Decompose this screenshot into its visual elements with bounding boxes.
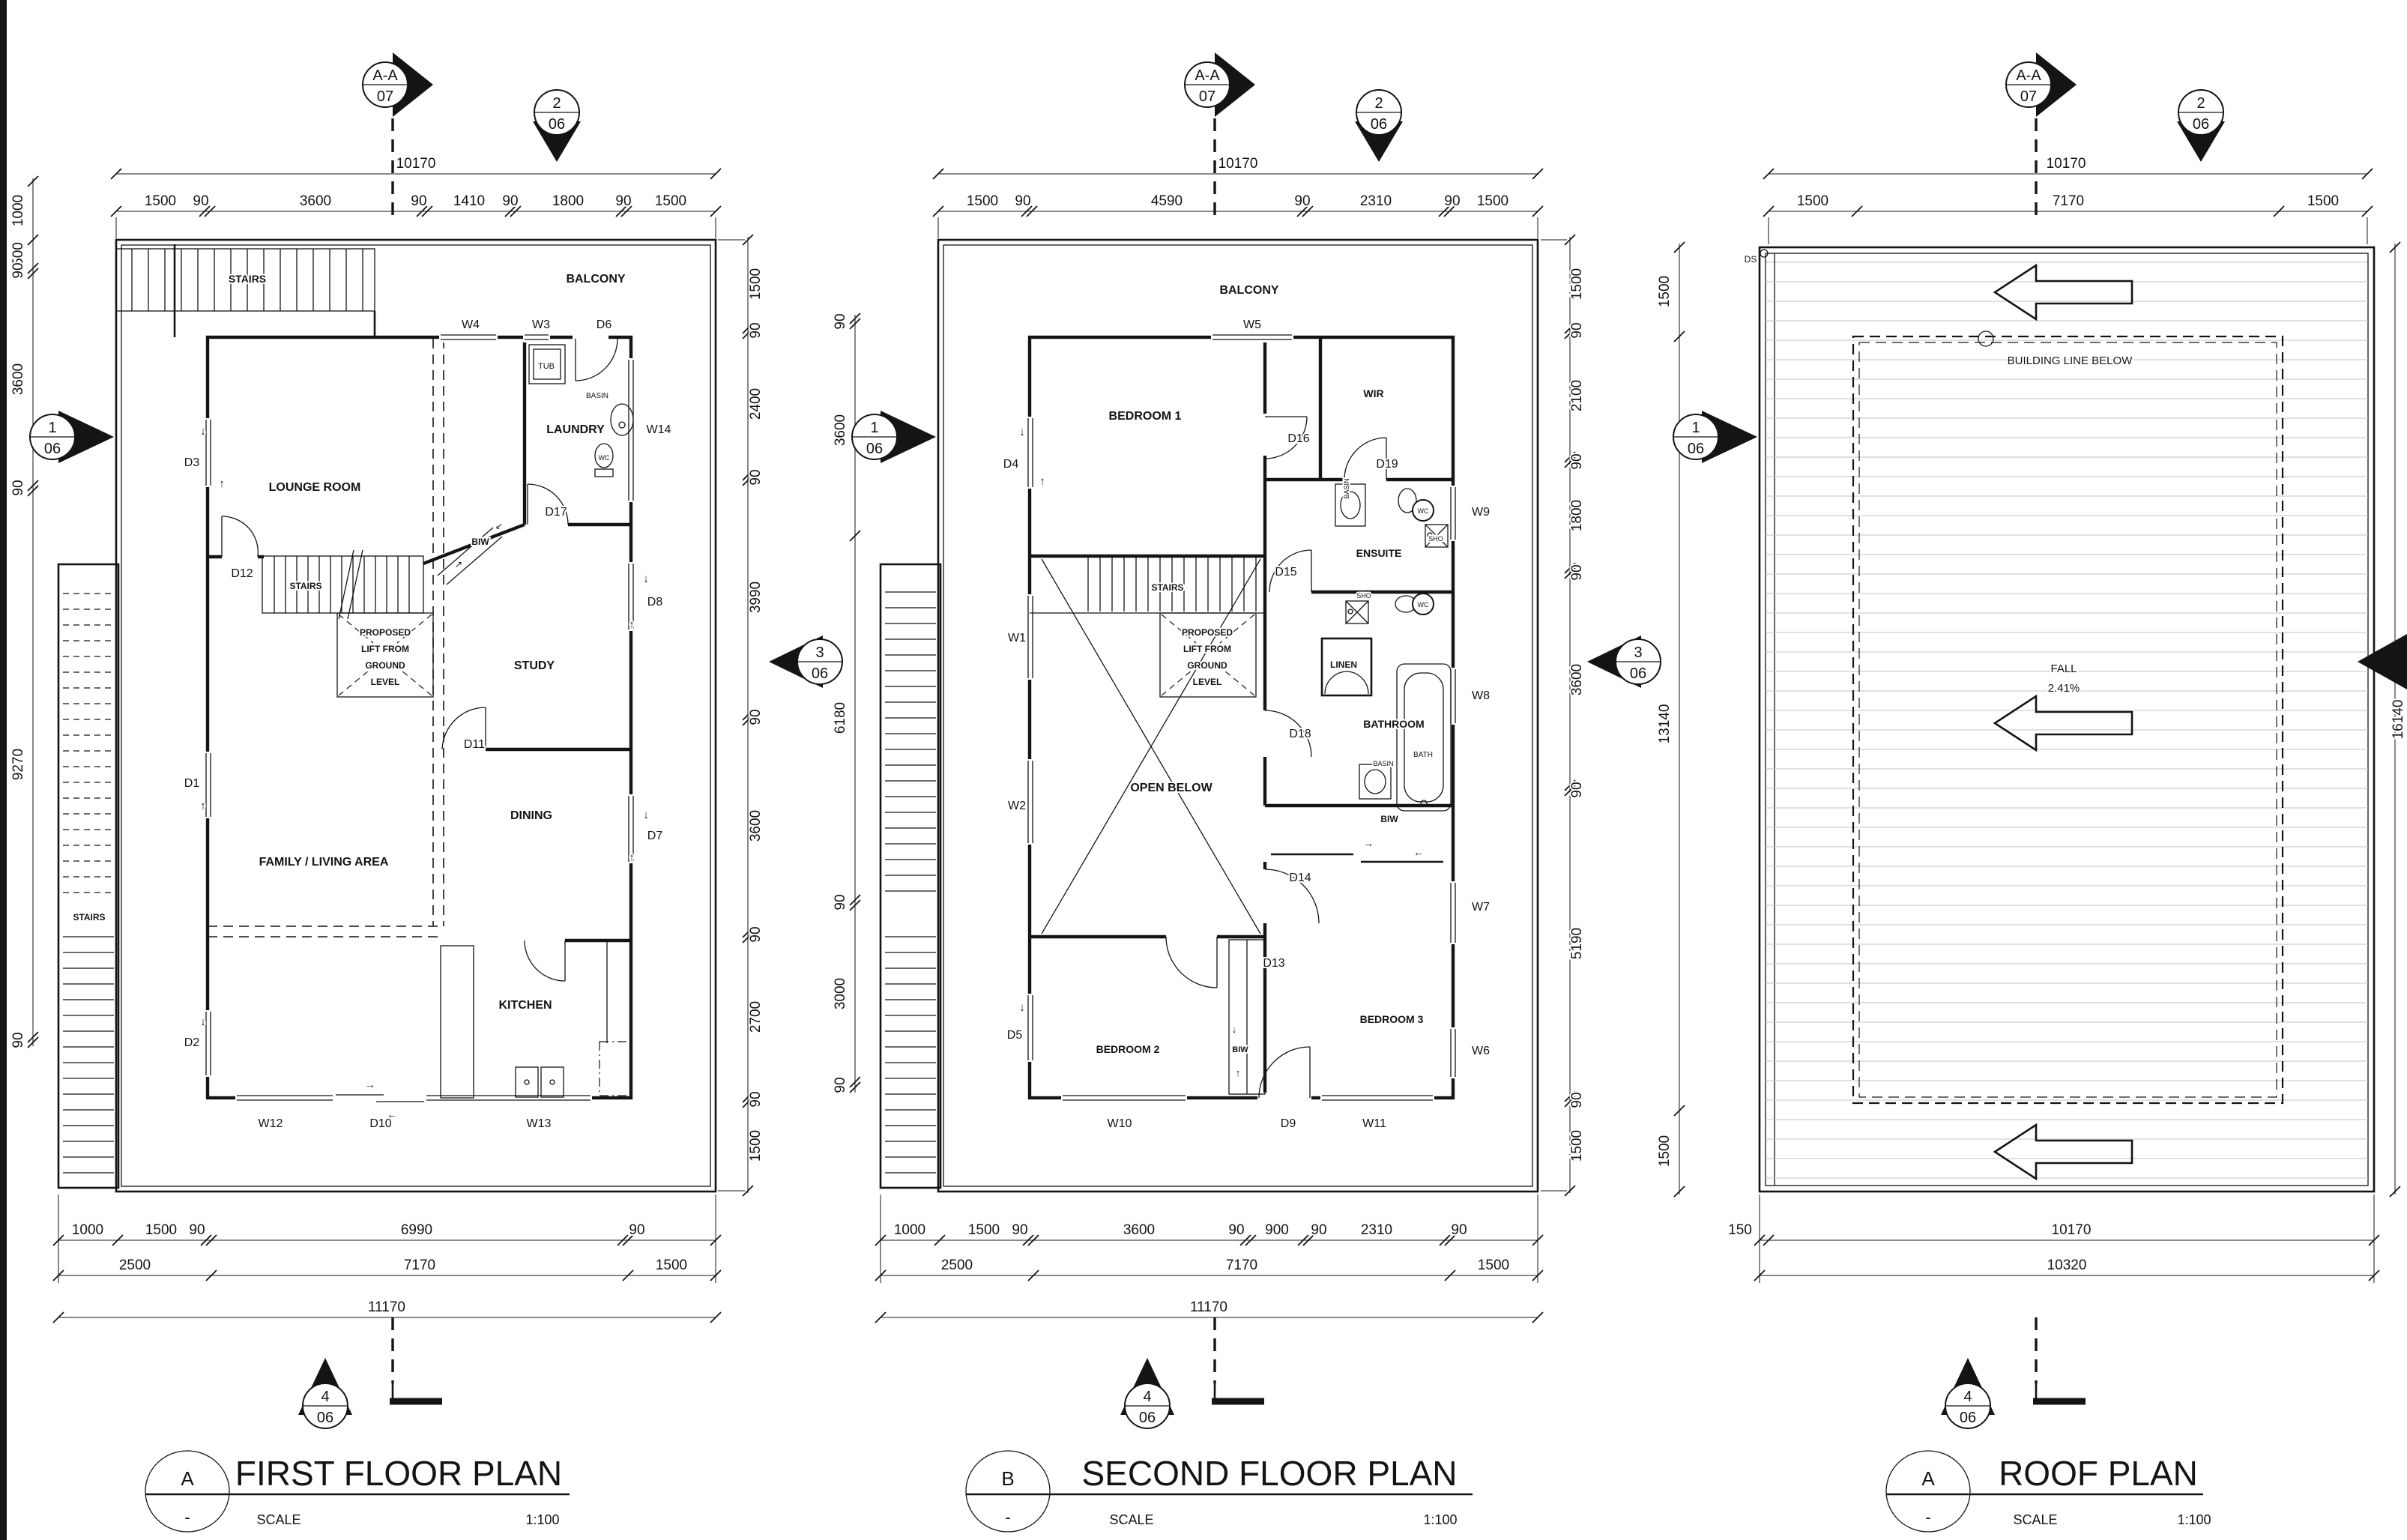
dim-label: 90 xyxy=(10,262,26,278)
room-label: WIR xyxy=(1363,387,1383,399)
dim-label: 90 xyxy=(748,322,764,338)
rp-building-line-below xyxy=(1853,331,2283,1103)
elevation-marker-number: 06 xyxy=(1960,1410,1976,1426)
window-w1 xyxy=(1024,594,1035,680)
clipped-right-marker xyxy=(2358,634,2407,689)
room-label: LOUNGE ROOM xyxy=(269,481,361,494)
door-swing-arrow: ↓ xyxy=(643,809,649,821)
dim-label: 1500 xyxy=(655,193,686,209)
scale-label: SCALE xyxy=(2013,1512,2057,1527)
dim-label: 2310 xyxy=(1360,193,1392,209)
room-label: BALCONY xyxy=(1219,284,1278,297)
room-label: OPEN BELOW xyxy=(1130,782,1212,794)
dim-label: 90 xyxy=(1228,1222,1244,1238)
elevation-marker-label: 1 xyxy=(870,420,878,436)
room-label: STAIRS xyxy=(289,581,321,591)
dim-label: 90 xyxy=(1015,193,1030,209)
ensuite-toilet xyxy=(1398,489,1434,521)
dim-label: 1000 xyxy=(10,195,26,226)
fixture-label: BASIN xyxy=(586,392,608,400)
dim-label: 90 xyxy=(615,193,631,209)
dim-label: 9270 xyxy=(10,749,26,780)
door-swing-arrow: ↓ xyxy=(1019,426,1025,438)
door-tag: D19 xyxy=(1376,458,1398,471)
door-tag: D12 xyxy=(231,567,253,580)
dim-label: 10170 xyxy=(1218,156,1258,172)
dim-label: 1000 xyxy=(72,1222,103,1238)
door-d12-swing xyxy=(222,516,258,557)
dim-label: 2100 xyxy=(1569,380,1585,411)
annotation: PROPOSED xyxy=(1182,627,1233,638)
door-swing-arrow: ↑ xyxy=(629,618,635,631)
door-tag: D9 xyxy=(1281,1117,1296,1130)
dim-label: 90 xyxy=(1569,1092,1585,1108)
bedroom2-biw xyxy=(1229,940,1265,1094)
section-marker-label: A-A xyxy=(372,67,398,84)
dim-label: 1500 xyxy=(145,193,176,209)
ffp-main-walls xyxy=(208,337,631,1098)
dim-label: 1500 xyxy=(967,193,998,209)
fixture-label: BASIN xyxy=(1373,760,1393,767)
dim-label: 3000 xyxy=(833,978,848,1009)
ffp-dimensions xyxy=(28,169,753,1323)
bathroom-shower xyxy=(1346,601,1368,623)
door-swing-arrow: ↗ xyxy=(455,559,462,570)
dim-label: 90 xyxy=(1451,1222,1467,1238)
door-tag: D15 xyxy=(1275,566,1296,579)
elevation-marker-label: 2 xyxy=(2196,95,2205,112)
window-w8 xyxy=(1448,668,1458,725)
dim-label: 11170 xyxy=(368,1299,405,1315)
door-tag: D11 xyxy=(464,738,485,751)
annotation: BUILDING LINE BELOW xyxy=(2008,354,2133,367)
fixture-label: WC xyxy=(1418,601,1429,609)
window-w6 xyxy=(1448,1027,1458,1078)
dim-label: 90 xyxy=(10,1032,26,1048)
door-d4 xyxy=(1024,417,1035,489)
fixture-label: BIW xyxy=(471,537,489,547)
section-marker-number: 07 xyxy=(1199,88,1215,105)
dim-label: 1500 xyxy=(968,1222,1000,1238)
fall-arrow-top xyxy=(1995,265,2132,319)
door-swing-arrow: → xyxy=(1363,837,1374,849)
titleblock-letter: B xyxy=(1001,1467,1014,1490)
dim-label: 11170 xyxy=(1190,1299,1227,1315)
door-tag: D13 xyxy=(1263,957,1284,970)
dim-label: 900 xyxy=(1265,1222,1289,1238)
dim-label: 10170 xyxy=(396,156,436,172)
dim-label: 3600 xyxy=(748,810,764,842)
window-tag: W11 xyxy=(1362,1117,1386,1130)
fall-arrow-bottom xyxy=(1995,1125,2132,1179)
elevation-marker-label: 2 xyxy=(552,95,561,112)
dim-label: 90 xyxy=(833,894,848,910)
rp-labels: A-A0720610640610170150071701500150013140… xyxy=(1657,67,2406,1527)
dim-label: 3990 xyxy=(748,582,764,613)
door-tag: D14 xyxy=(1289,872,1311,884)
dim-label: 1500 xyxy=(656,1257,687,1273)
window-tag: W13 xyxy=(527,1117,552,1130)
dim-label: 90 xyxy=(10,480,26,495)
ffp-kitchen-fixtures xyxy=(441,940,631,1098)
dim-label: 10170 xyxy=(2047,156,2086,172)
dim-label: 90 xyxy=(748,926,764,942)
dim-label: 6180 xyxy=(833,702,848,734)
elevation-marker-number: 06 xyxy=(1688,441,1704,457)
ensuite-basin xyxy=(1335,484,1365,526)
window-w7 xyxy=(1448,881,1458,944)
annotation: DS xyxy=(1745,254,1757,265)
door-swing-arrow: ↓ xyxy=(643,573,649,585)
fixture-label: SHO xyxy=(1428,535,1443,543)
elevation-marker-label: 1 xyxy=(48,420,56,436)
dim-label: 3600 xyxy=(1123,1222,1155,1238)
dim-label: 1500 xyxy=(1478,1257,1509,1273)
sfp-fixtures xyxy=(1229,484,1451,1094)
dim-label: 3600 xyxy=(300,193,331,209)
elevation-marker-number: 06 xyxy=(1371,116,1387,133)
window-tag: W2 xyxy=(1008,800,1026,812)
rp-section-markers xyxy=(1673,52,2407,1428)
dim-label: 7170 xyxy=(404,1257,435,1273)
dim-label: 1500 xyxy=(1797,193,1828,209)
dim-label: 90 xyxy=(411,193,426,209)
door-swing-arrow: → xyxy=(365,1078,375,1090)
door-swing-arrow: ↑ xyxy=(1236,1067,1241,1078)
elevation-marker-number: 06 xyxy=(1139,1410,1156,1426)
plan-title: FIRST FLOOR PLAN xyxy=(235,1454,562,1493)
dim-label: 90 xyxy=(189,1222,205,1238)
room-label: BEDROOM 1 xyxy=(1109,410,1182,423)
dim-label: 90 xyxy=(748,1091,764,1107)
fixture-label: BIW xyxy=(1380,814,1398,824)
room-label: STAIRS xyxy=(1151,582,1183,593)
door-swing-arrow: ↑ xyxy=(629,851,635,864)
elevation-marker-label: 4 xyxy=(1963,1389,1972,1405)
dim-label: 2700 xyxy=(748,1001,764,1033)
window-w11 xyxy=(1320,1093,1434,1103)
dim-label: 1800 xyxy=(1569,500,1585,531)
dim-label: 90 xyxy=(1311,1222,1326,1238)
elevation-marker-label: 2 xyxy=(1374,95,1383,112)
door-swing-arrow: ↓ xyxy=(200,425,206,438)
second-floor-plan: A-A0720610630640610170150090459090231090… xyxy=(833,52,1661,1532)
dim-label: 90 xyxy=(833,1077,848,1093)
dim-label: 1500 xyxy=(2307,193,2339,209)
room-label: LAUNDRY xyxy=(546,423,605,436)
dim-label: 90 xyxy=(1444,193,1460,209)
elevation-marker-number: 06 xyxy=(317,1410,333,1426)
window-w14 xyxy=(626,358,636,502)
door-tag: D16 xyxy=(1287,432,1309,445)
annotation: LEVEL xyxy=(371,677,400,687)
fall-arrow-middle xyxy=(1995,696,2132,750)
door-swing-arrow: ← xyxy=(387,1108,397,1120)
fixture-label: BATH xyxy=(1413,751,1433,759)
window-tag: W6 xyxy=(1472,1045,1490,1057)
room-label: BALCONY xyxy=(566,273,625,286)
window-tag: W9 xyxy=(1472,506,1490,519)
first-floor-plan: A-A0720610630640610170150090360090141090… xyxy=(10,52,842,1532)
scale-value: 1:100 xyxy=(2177,1512,2211,1527)
annotation: 2.41% xyxy=(2048,682,2080,695)
dim-label: 1500 xyxy=(145,1222,177,1238)
dim-label: 90 xyxy=(1012,1222,1027,1238)
door-d13-swing xyxy=(1166,937,1217,988)
scale-label: SCALE xyxy=(1109,1512,1153,1527)
window-tag: W14 xyxy=(647,423,671,436)
dim-label: 4590 xyxy=(1151,193,1183,209)
annotation: FALL xyxy=(2050,662,2077,675)
elevation-marker-label: 1 xyxy=(1691,420,1700,436)
door-tag: D18 xyxy=(1289,728,1311,740)
sfp-open-below xyxy=(1030,558,1265,934)
fixture-label: WC xyxy=(1418,507,1429,515)
dim-label: 90 xyxy=(1569,453,1585,469)
window-w10 xyxy=(1061,1093,1187,1103)
annotation: LEVEL xyxy=(1193,677,1222,687)
elevation-marker-number: 06 xyxy=(549,116,565,133)
elevation-marker-number: 06 xyxy=(44,441,61,457)
door-tag: D1 xyxy=(184,777,200,790)
elevation-marker-number: 06 xyxy=(812,665,828,682)
room-label: ENSUITE xyxy=(1356,547,1402,559)
dim-label: 7170 xyxy=(2053,193,2084,209)
dim-label: 13140 xyxy=(1657,704,1673,744)
roof-plan: A-A0720610640610170150071701500150013140… xyxy=(1657,52,2407,1532)
dim-label: 5190 xyxy=(1569,928,1585,959)
section-marker-number: 07 xyxy=(2020,88,2037,105)
door-tag: D17 xyxy=(545,506,567,519)
dim-label: 3600 xyxy=(833,414,848,446)
fixture-label: TUB xyxy=(538,362,555,371)
window-tag: W1 xyxy=(1008,632,1026,644)
elevation-marker-label: 4 xyxy=(1143,1389,1151,1405)
fridge-space xyxy=(600,1042,631,1096)
door-d6 xyxy=(573,332,617,381)
dim-label: 90 xyxy=(629,1222,644,1238)
window-w2 xyxy=(1024,759,1035,845)
scale-label: SCALE xyxy=(256,1512,301,1527)
door-tag: D8 xyxy=(647,596,663,609)
door-swing-arrow: ↓ xyxy=(200,1015,206,1028)
dim-label: 90 xyxy=(833,313,848,329)
sfp-side-stairs xyxy=(881,564,940,1188)
page-binding-edge xyxy=(0,0,7,1540)
elevation-marker-label: 3 xyxy=(1634,644,1642,661)
dim-label: 1410 xyxy=(453,193,485,209)
ffp-front-stairs xyxy=(116,244,375,337)
fixture-label: BASIN xyxy=(1343,478,1350,498)
room-label: BEDROOM 3 xyxy=(1360,1013,1424,1025)
dim-label: 90 xyxy=(1569,564,1585,580)
dim-label: 3600 xyxy=(10,363,26,395)
scale-value: 1:100 xyxy=(1423,1512,1457,1527)
section-marker-number: 07 xyxy=(377,88,393,105)
room-label: STUDY xyxy=(514,659,555,672)
bathroom-basin xyxy=(1359,764,1391,799)
ffp-labels: A-A0720610630640610170150090360090141090… xyxy=(10,67,828,1527)
dim-label: 2500 xyxy=(941,1257,973,1273)
scale-value: 1:100 xyxy=(525,1512,559,1527)
dim-label: 90 xyxy=(193,193,208,209)
door-swing-arrow: ← xyxy=(1413,846,1424,858)
section-marker-label: A-A xyxy=(2016,67,2041,84)
fixture-label: SHO xyxy=(1356,592,1371,600)
room-label: LINEN xyxy=(1330,659,1357,670)
dim-label: 3600 xyxy=(1569,664,1585,695)
dim-label: 2310 xyxy=(1361,1222,1392,1238)
dim-label: 7170 xyxy=(1226,1257,1257,1273)
kitchen-door-swing xyxy=(525,940,565,981)
window-tag: W5 xyxy=(1243,318,1261,331)
elevation-marker-number: 06 xyxy=(2193,116,2209,133)
window-w3 xyxy=(523,332,550,342)
dim-label: 16140 xyxy=(2391,700,2406,740)
door-tag: D3 xyxy=(184,456,200,469)
door-swing-arrow: ↑ xyxy=(219,477,225,490)
dim-label: 2500 xyxy=(119,1257,151,1273)
room-label: BEDROOM 2 xyxy=(1096,1043,1160,1055)
window-tag: W4 xyxy=(462,318,480,331)
door-tag: D2 xyxy=(184,1036,200,1049)
plan-title: SECOND FLOOR PLAN xyxy=(1082,1454,1458,1493)
door-swing-arrow: ↑ xyxy=(1039,475,1045,488)
dim-label: 1500 xyxy=(1477,193,1508,209)
elevation-marker-number: 06 xyxy=(866,441,883,457)
dim-label: 2400 xyxy=(748,388,764,420)
dim-label: 90 xyxy=(748,469,764,485)
annotation: GROUND xyxy=(365,660,405,671)
bathtub xyxy=(1397,664,1451,811)
plan-title: ROOF PLAN xyxy=(1999,1454,2198,1493)
dim-label: 500 xyxy=(10,242,26,266)
room-label: STAIRS xyxy=(73,912,105,923)
fixture-label: BIW xyxy=(1232,1045,1248,1054)
window-tag: W12 xyxy=(259,1117,283,1130)
elevation-marker-number: 06 xyxy=(1630,665,1646,682)
dim-label: 90 xyxy=(502,193,518,209)
room-label: BATHROOM xyxy=(1363,718,1424,730)
sfp-labels: A-A0720610630640610170150090459090231090… xyxy=(833,67,1646,1527)
window-w12 xyxy=(235,1093,334,1103)
window-w9 xyxy=(1448,486,1458,541)
window-tag: W7 xyxy=(1472,901,1490,914)
window-w4 xyxy=(439,332,498,342)
door-swing-arrow: ↙ xyxy=(495,521,503,531)
leader-loop xyxy=(1978,331,1993,346)
annotation: LIFT FROM xyxy=(361,644,409,654)
window-tag: W10 xyxy=(1108,1117,1132,1130)
window-tag: W3 xyxy=(532,318,550,331)
door-tag: D5 xyxy=(1007,1029,1023,1042)
dim-label: 1500 xyxy=(748,1130,764,1162)
dim-label: 10170 xyxy=(2052,1222,2092,1238)
dim-label: 90 xyxy=(1294,193,1310,209)
door-tag: D7 xyxy=(647,830,663,842)
titleblock-revision: - xyxy=(184,1508,190,1527)
annotation: PROPOSED xyxy=(360,627,411,638)
door-swing-arrow: ↓ xyxy=(1019,1001,1025,1014)
annotation: GROUND xyxy=(1187,660,1227,671)
elevation-marker-label: 4 xyxy=(321,1389,329,1405)
dim-label: 90 xyxy=(748,709,764,725)
annotation: LIFT FROM xyxy=(1183,644,1231,654)
ffp-openings xyxy=(202,332,636,1103)
titleblock-letter: A xyxy=(181,1467,194,1490)
dim-label: 10320 xyxy=(2047,1257,2087,1273)
door-tag: D6 xyxy=(597,318,612,331)
room-label: KITCHEN xyxy=(498,999,552,1012)
door-swing-arrow: ↑ xyxy=(200,800,206,812)
room-label: FAMILY / LIVING AREA xyxy=(259,856,389,869)
titleblock-revision: - xyxy=(1005,1508,1010,1527)
ffp-side-stairs xyxy=(58,564,118,1188)
dim-label: 1800 xyxy=(552,193,584,209)
dim-label: 1500 xyxy=(1569,1130,1585,1162)
titleblock-letter: A xyxy=(1921,1467,1935,1490)
fixture-label: WC xyxy=(599,454,610,462)
door-swing-arrow: ↓ xyxy=(1232,1024,1237,1035)
dim-label: 150 xyxy=(1728,1222,1752,1238)
dim-label: 1500 xyxy=(1657,276,1673,307)
window-tag: W8 xyxy=(1472,689,1490,702)
window-w5 xyxy=(1211,332,1293,342)
ffp-interior-stairs xyxy=(262,550,433,697)
door-d10 xyxy=(334,1093,426,1103)
dim-label: 1500 xyxy=(1569,268,1585,300)
dim-label: 1500 xyxy=(1657,1135,1673,1167)
door-tag: D4 xyxy=(1003,458,1019,471)
dim-label: 6990 xyxy=(401,1222,432,1238)
room-label: STAIRS xyxy=(229,273,266,285)
titleblock-revision: - xyxy=(1925,1508,1930,1527)
rp-fall-arrows xyxy=(1760,250,2132,1179)
section-marker-label: A-A xyxy=(1195,67,1220,84)
architectural-plan-sheet: A-A0720610630640610170150090360090141090… xyxy=(0,0,2407,1540)
room-label: DINING xyxy=(510,809,552,822)
dim-label: 90 xyxy=(1569,782,1585,797)
dim-label: 1500 xyxy=(748,268,764,300)
dim-label: 90 xyxy=(1569,322,1585,338)
elevation-marker-label: 3 xyxy=(815,644,824,661)
door-d5 xyxy=(1024,994,1035,1062)
dim-label: 1000 xyxy=(894,1222,925,1238)
